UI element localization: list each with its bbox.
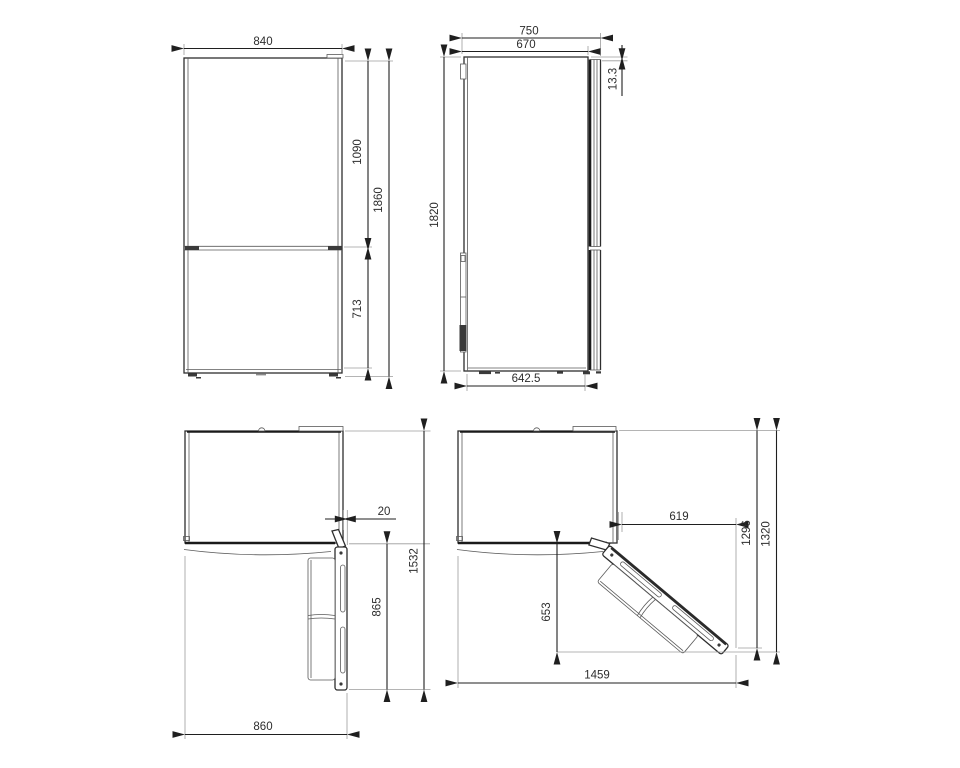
top-hinge-cover bbox=[327, 55, 343, 59]
dim-label-total-depth-135: 1320 bbox=[761, 521, 773, 547]
dim-label-total-height: 1860 bbox=[373, 187, 385, 213]
open-door-90 bbox=[308, 530, 347, 691]
dim-label-front-width: 840 bbox=[253, 36, 272, 48]
front-cabinet-outline bbox=[184, 58, 342, 373]
rear-recess-90 bbox=[299, 427, 343, 432]
side-view: 750 670 13.3 1820 642.5 bbox=[429, 26, 628, 392]
dim-front-heights: 1090 713 1860 bbox=[344, 61, 393, 377]
dim-label-side-height: 1820 bbox=[429, 202, 441, 228]
dim-label-door-clearance: 20 bbox=[378, 506, 391, 518]
dim-door-top-offset: 13.3 bbox=[591, 45, 628, 96]
dim-label-door-projection-90: 865 bbox=[372, 597, 384, 616]
dimension-diagram: 840 1090 713 1860 bbox=[0, 0, 960, 768]
dim-label-plan-width: 860 bbox=[253, 721, 272, 733]
dim-label-door-top-offset: 13.3 bbox=[608, 68, 620, 90]
dim-label-door-swing-width: 619 bbox=[669, 511, 688, 523]
water-valve-bump bbox=[259, 428, 265, 431]
dim-side-base-depth: 642.5 bbox=[467, 373, 585, 391]
dim-label-total-depth-open: 1532 bbox=[409, 548, 421, 574]
dim-front-width: 840 bbox=[184, 36, 342, 55]
dim-plan-depths-90: 1532 865 bbox=[345, 431, 431, 690]
dim-label-lower-door-height: 713 bbox=[352, 299, 364, 318]
dim-door-projection-135: 653 bbox=[541, 544, 557, 653]
door-bins-90 bbox=[308, 558, 335, 680]
dim-label-body-depth: 670 bbox=[516, 39, 535, 51]
dim-label-total-depth: 750 bbox=[519, 26, 538, 38]
dim-side-height: 1820 bbox=[429, 57, 461, 371]
plan-cabinet-outline-90 bbox=[185, 431, 343, 543]
technical-drawing-page: 840 1090 713 1860 bbox=[0, 0, 960, 768]
plan-view-door-90: 20 1532 865 860 bbox=[184, 427, 431, 740]
rear-recess-135 bbox=[573, 427, 616, 432]
water-valve-bump-135 bbox=[534, 428, 540, 431]
dim-label-upper-door-height: 1090 bbox=[352, 139, 364, 165]
lower-door-curve-90 bbox=[184, 550, 331, 555]
plan-view-door-135: 619 1296 1320 653 1459 bbox=[457, 427, 781, 689]
dim-label-total-width-open: 1459 bbox=[584, 670, 610, 682]
lower-door-curve-135 bbox=[457, 550, 603, 555]
dim-side-body-depth: 670 bbox=[462, 39, 588, 55]
front-view: 840 1090 713 1860 bbox=[184, 36, 393, 379]
plan-cabinet-outline-135 bbox=[458, 431, 617, 543]
dim-label-base-depth: 642.5 bbox=[512, 373, 541, 385]
dim-label-door-projection-135: 653 bbox=[541, 602, 553, 621]
side-cabinet-outline bbox=[464, 57, 588, 371]
dim-label-depth-to-door-edge: 1296 bbox=[741, 520, 753, 546]
side-door-profile bbox=[590, 60, 601, 371]
